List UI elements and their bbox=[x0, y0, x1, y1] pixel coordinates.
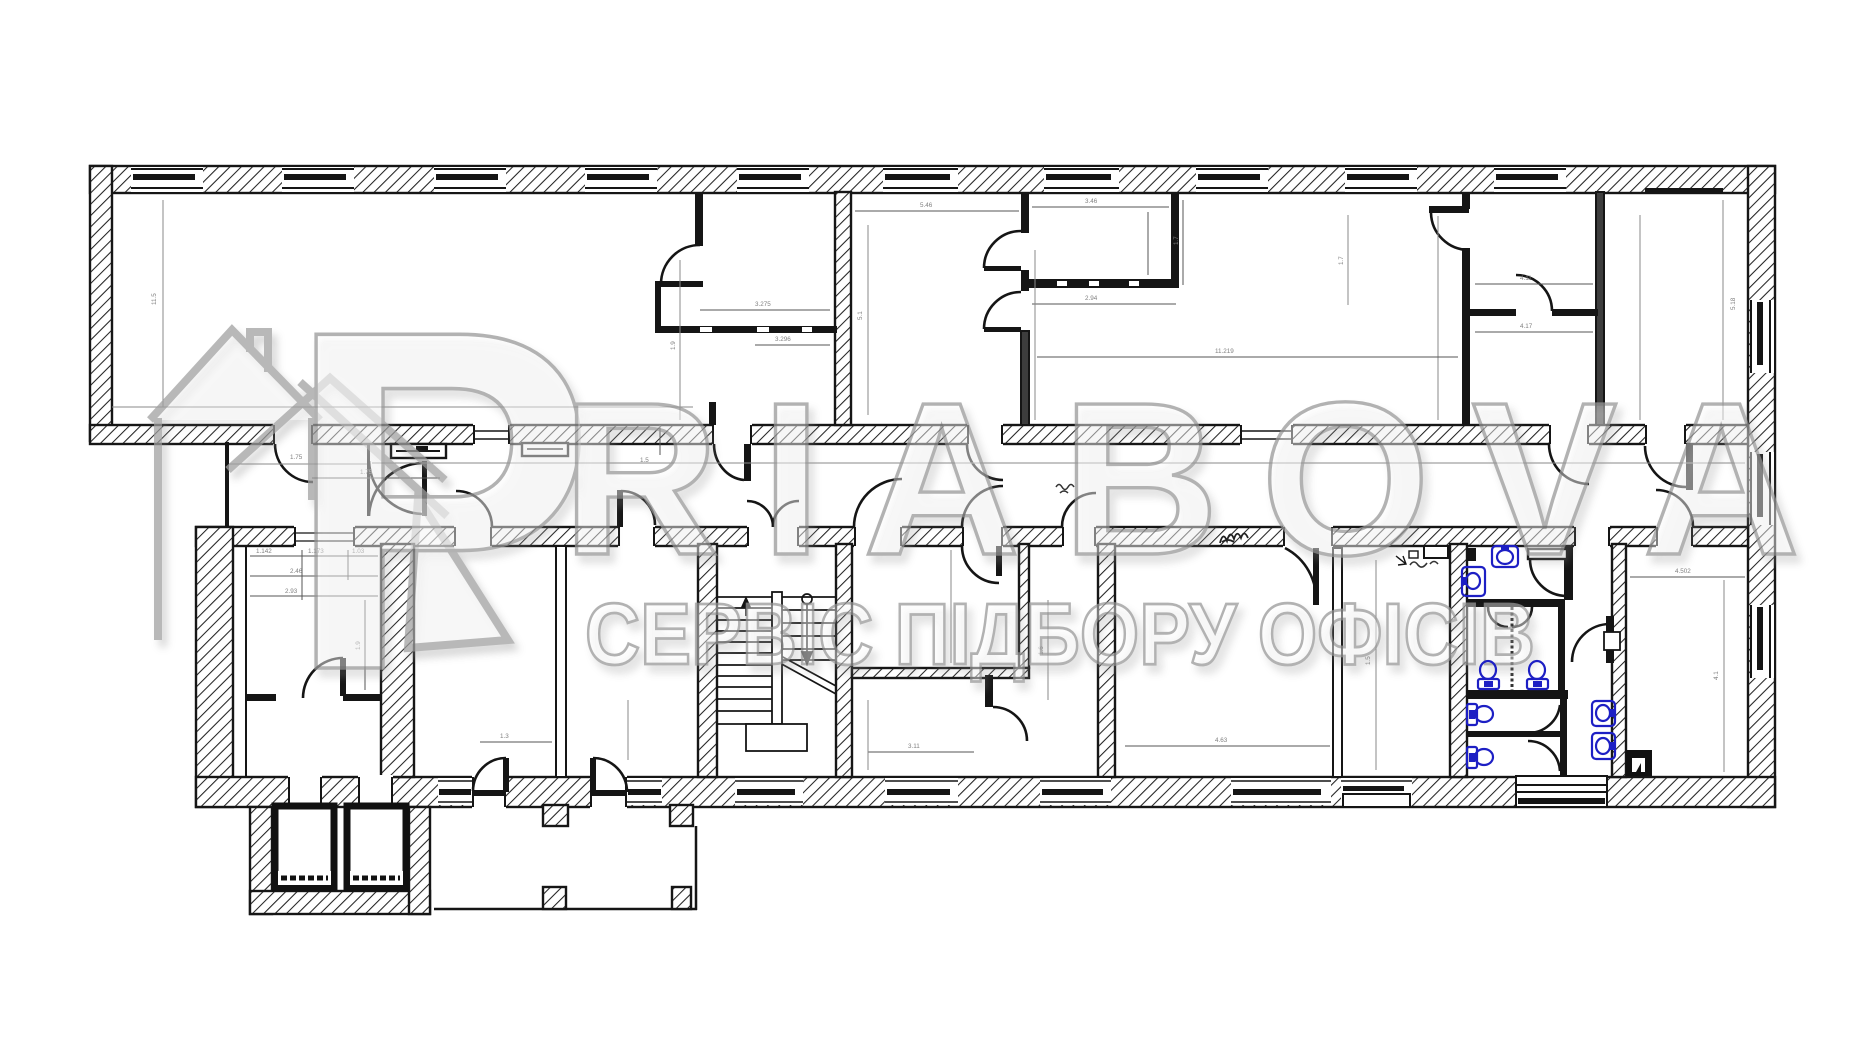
svg-text:4.17: 4.17 bbox=[1520, 323, 1533, 330]
svg-text:11.219: 11.219 bbox=[1215, 348, 1234, 355]
svg-text:3.275: 3.275 bbox=[755, 301, 771, 308]
svg-text:3.46: 3.46 bbox=[1085, 198, 1098, 205]
svg-text:5.1: 5.1 bbox=[857, 311, 864, 320]
svg-text:5.46: 5.46 bbox=[920, 202, 933, 209]
svg-text:4.1: 4.1 bbox=[1713, 671, 1720, 680]
svg-text:2.94: 2.94 bbox=[1085, 295, 1098, 302]
svg-text:3.11: 3.11 bbox=[908, 743, 920, 750]
svg-text:5.18: 5.18 bbox=[1730, 297, 1737, 310]
svg-text:Р: Р bbox=[285, 229, 595, 771]
svg-text:4.11: 4.11 bbox=[1520, 275, 1532, 282]
svg-text:СЕРВІС ПІДБОРУ ОФІСІВ: СЕРВІС ПІДБОРУ ОФІСІВ bbox=[585, 586, 1535, 683]
svg-text:1.7: 1.7 bbox=[1338, 256, 1345, 265]
svg-text:11.5: 11.5 bbox=[151, 293, 158, 305]
svg-text:1.7: 1.7 bbox=[1173, 236, 1180, 245]
svg-text:3.296: 3.296 bbox=[775, 336, 791, 343]
svg-text:1.142: 1.142 bbox=[256, 548, 272, 555]
svg-text:1.9: 1.9 bbox=[670, 341, 677, 350]
svg-text:4.63: 4.63 bbox=[1215, 737, 1228, 744]
